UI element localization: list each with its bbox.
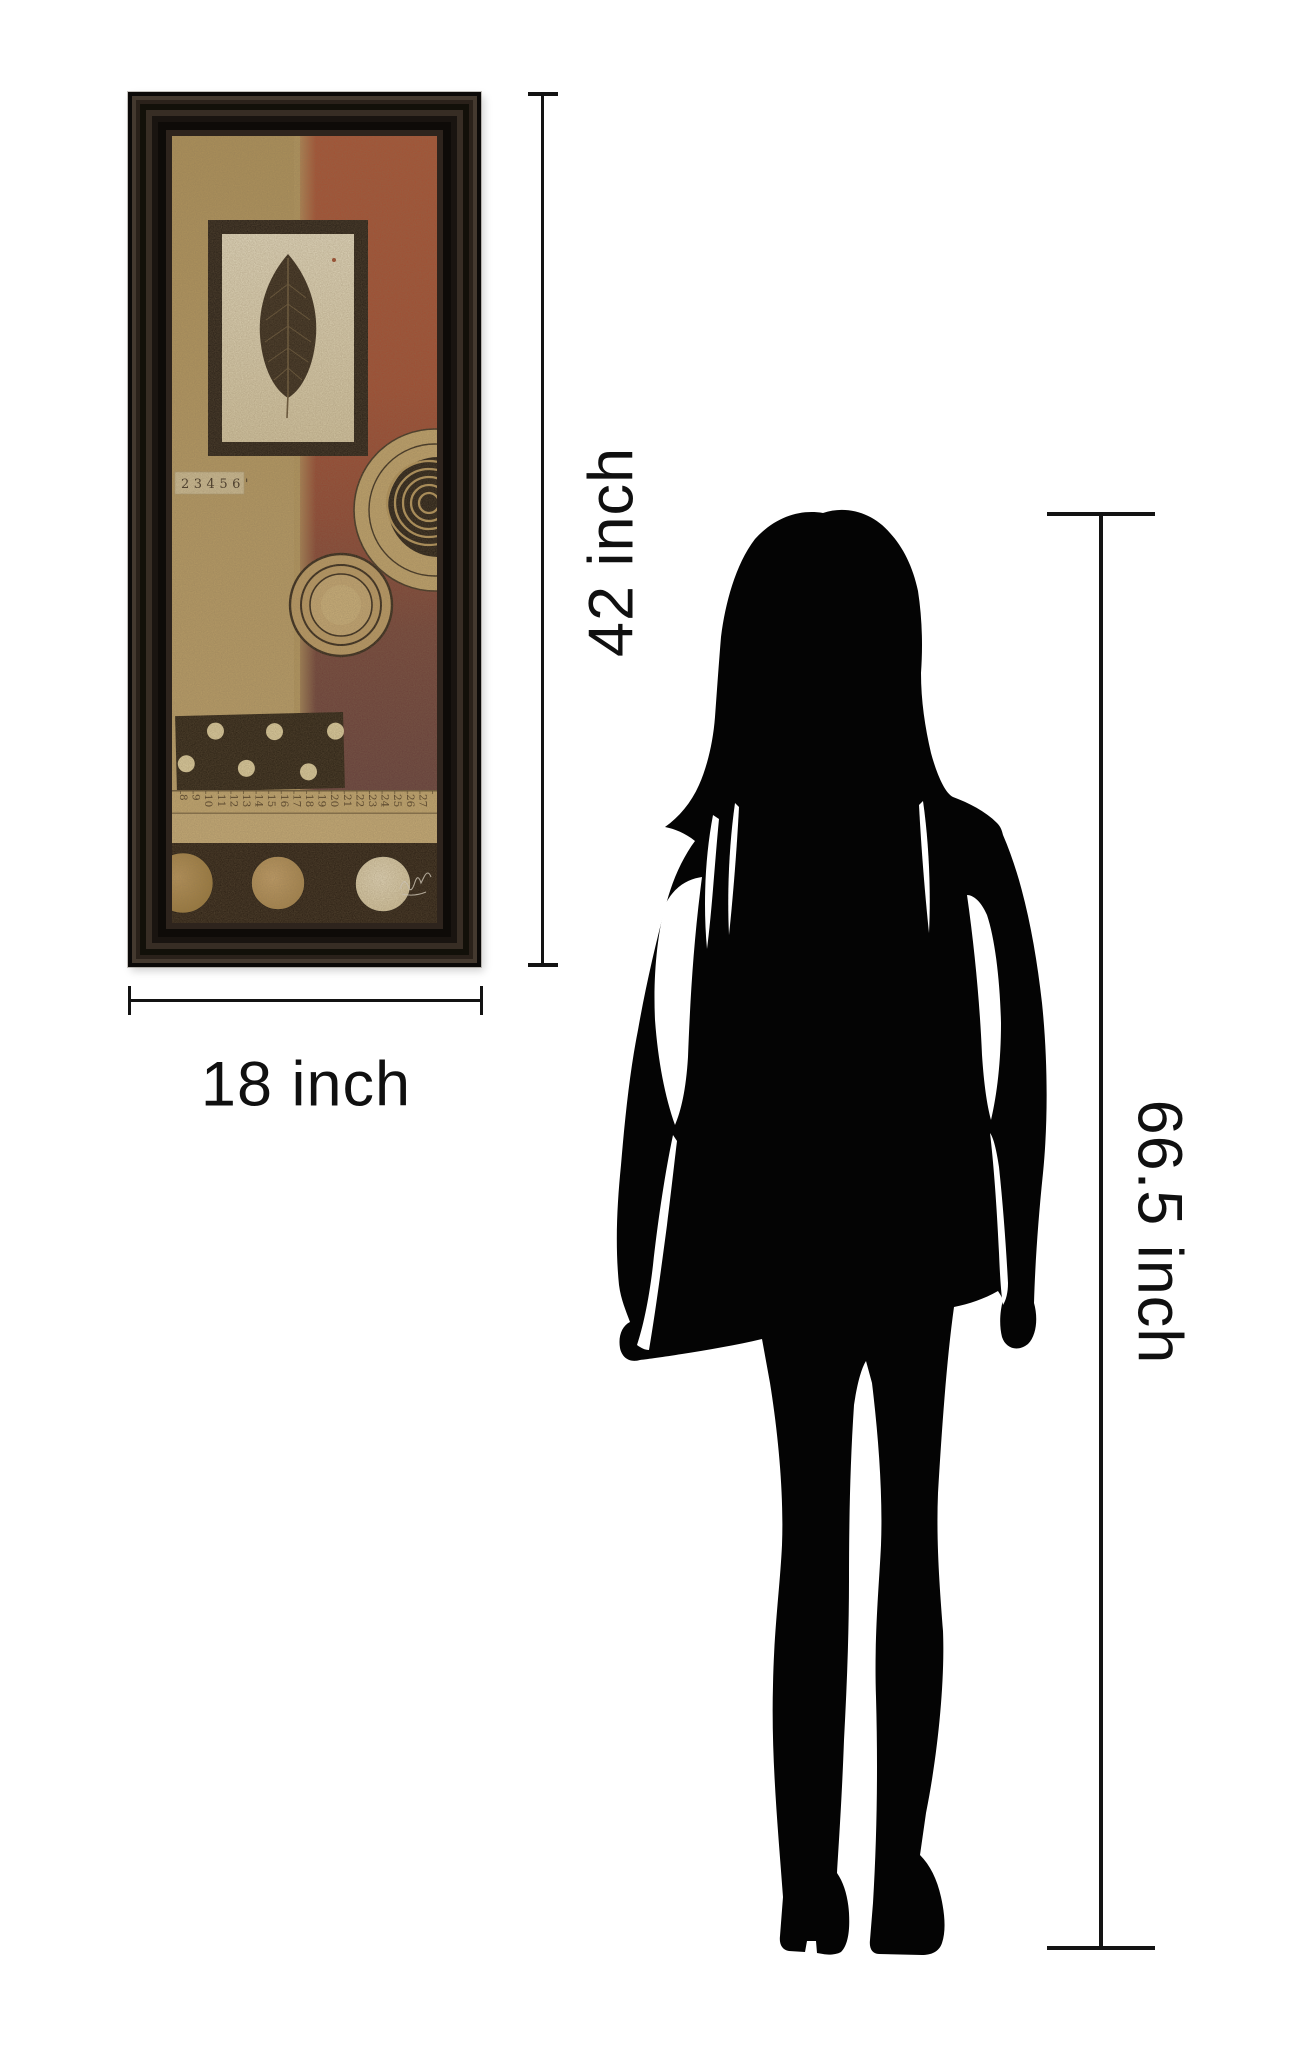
person-height-label: 66.5 inch — [1128, 1100, 1191, 1365]
art-height-dimension-line — [541, 92, 544, 967]
art-width-right-tick — [480, 986, 483, 1015]
framed-art-print: 23456' 8 9 10 11 — [128, 92, 481, 967]
art-height-top-cap — [528, 92, 558, 96]
abstract-collage-painting: 23456' 8 9 10 11 — [172, 136, 437, 923]
product-dimension-diagram: { "canvas": { "background": "#ffffff" },… — [0, 0, 1296, 2048]
art-height-bottom-cap — [528, 963, 558, 967]
silhouette-body — [617, 510, 1047, 1955]
canvas-texture — [172, 136, 437, 923]
woman-silhouette — [585, 505, 1075, 1955]
art-canvas: 23456' 8 9 10 11 — [172, 136, 437, 923]
art-width-left-tick — [128, 986, 131, 1015]
art-width-label: 18 inch — [201, 1054, 411, 1117]
person-height-dimension-line — [1099, 512, 1103, 1950]
art-width-dimension-line — [129, 999, 483, 1002]
